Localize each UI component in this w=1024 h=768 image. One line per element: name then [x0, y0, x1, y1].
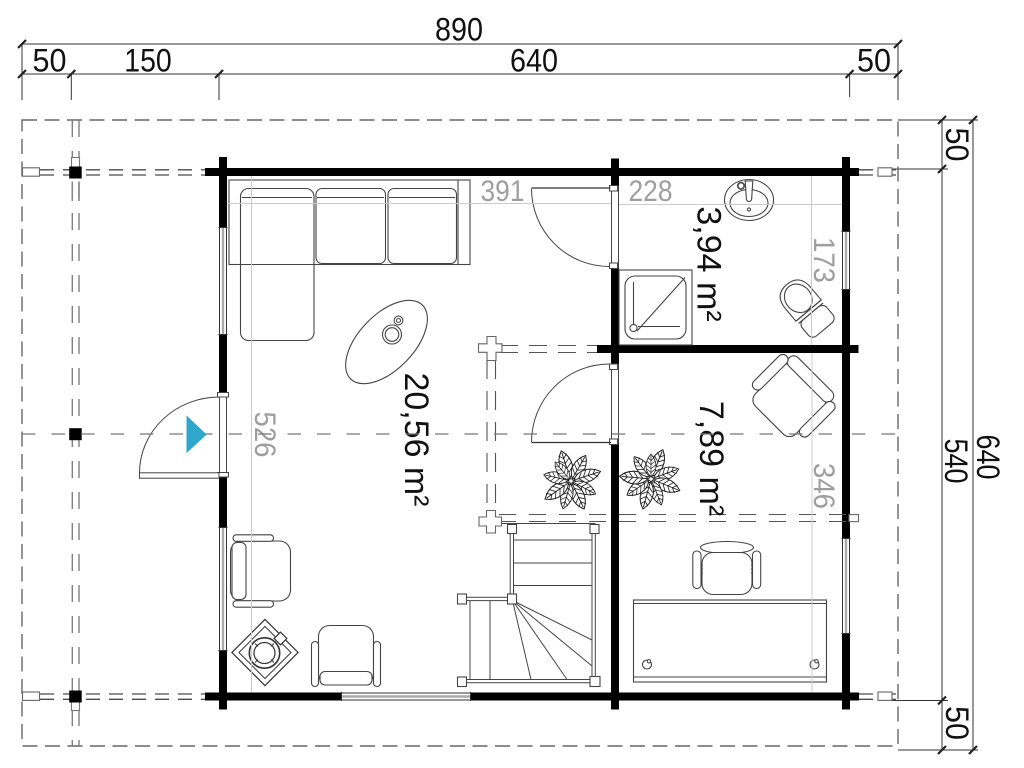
svg-text:540: 540 [938, 439, 974, 484]
svg-text:890: 890 [435, 12, 483, 48]
svg-text:7,89 m²: 7,89 m² [692, 401, 730, 516]
svg-text:50: 50 [33, 43, 67, 79]
svg-text:640: 640 [510, 43, 558, 79]
svg-text:20,56 m²: 20,56 m² [397, 373, 435, 507]
svg-text:50: 50 [939, 128, 975, 162]
svg-text:150: 150 [124, 43, 172, 79]
svg-text:50: 50 [857, 43, 891, 79]
svg-text:640: 640 [970, 435, 1006, 480]
svg-text:228: 228 [629, 175, 673, 208]
svg-text:50: 50 [939, 706, 975, 740]
svg-text:3,94 m²: 3,94 m² [690, 206, 728, 321]
